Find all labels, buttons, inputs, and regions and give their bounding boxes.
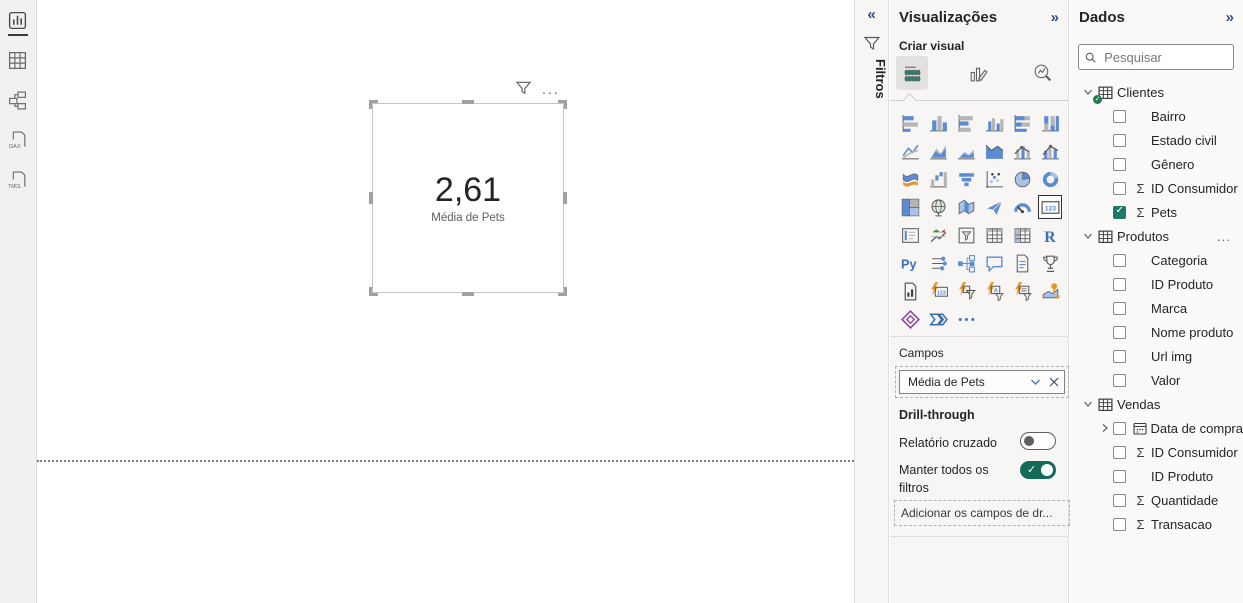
card-visual-content: 2,61 Média de Pets [373,104,563,292]
field-checkbox[interactable] [1113,182,1126,195]
field-gênero[interactable]: Gênero [1070,152,1243,176]
visual-type-slicer[interactable] [954,223,978,247]
field-checkbox[interactable] [1113,254,1126,267]
field-quantidade[interactable]: Σ Quantidade [1070,488,1243,512]
field-checkbox[interactable] [1113,494,1126,507]
field-checkbox[interactable] [1113,422,1126,435]
visualizations-tabs [896,56,1058,90]
keep-all-filters-toggle[interactable]: ✓ [1020,461,1056,479]
resize-handle-corner[interactable] [369,100,378,109]
view-rail: DAXTMDL [0,0,37,603]
visual-type-new-slicer[interactable] [954,279,978,303]
sigma-icon: Σ [1132,205,1149,220]
field-id-consumidor[interactable]: Σ ID Consumidor [1070,176,1243,200]
visual-type-multi-row-card[interactable] [898,223,922,247]
visual-type-more-visuals[interactable] [954,307,978,331]
field-label: Pets [1151,205,1177,220]
field-checkbox[interactable] [1113,134,1126,147]
visual-type-area-chart[interactable] [926,139,950,163]
field-id-produto[interactable]: ID Produto [1070,272,1243,296]
field-label: Estado civil [1151,133,1217,148]
field-pill-remove-icon[interactable] [1049,377,1059,387]
field-label: ID Consumidor [1151,445,1238,460]
calendar-icon [1132,422,1149,435]
field-label: Quantidade [1151,493,1218,508]
resize-handle-edge[interactable] [563,192,567,204]
field-data-de-compra[interactable]: Data de compra [1070,416,1243,440]
search-box[interactable] [1078,44,1234,70]
filter-funnel-icon[interactable] [515,80,532,97]
field-label: Transacao [1151,517,1212,532]
field-label: Nome produto [1151,325,1233,340]
visualizations-pane: Visualizações » Criar visual 123RPy123A … [890,0,1069,603]
visual-type-r-script-visual[interactable]: R [1038,223,1062,247]
svg-text:TMDL: TMDL [8,184,22,190]
field-checkbox[interactable] [1113,278,1126,291]
page-boundary-line [37,460,854,462]
visual-type-text-slicer[interactable]: A [982,279,1006,303]
visual-type-kpi[interactable] [926,223,950,247]
report-canvas[interactable]: ... 2,61 Média de Pets [37,0,854,603]
resize-handle-edge[interactable] [462,100,474,104]
visual-type-line-chart[interactable] [898,139,922,163]
field-categoria[interactable]: Categoria [1070,248,1243,272]
field-label: ID Consumidor [1151,181,1238,196]
field-id-consumidor[interactable]: Σ ID Consumidor [1070,440,1243,464]
tab-format-visual[interactable] [961,56,993,90]
field-url-img[interactable]: Url img [1070,344,1243,368]
field-pill-media-de-pets[interactable]: Média de Pets [899,370,1065,394]
drillthrough-label: Drill-through [899,408,975,422]
visual-type-power-apps[interactable] [898,307,922,331]
field-label: Url img [1151,349,1192,364]
svg-text:123: 123 [1044,205,1056,212]
cross-report-toggle[interactable] [1020,432,1056,450]
field-nome-produto[interactable]: Nome produto [1070,320,1243,344]
field-checkbox[interactable] [1113,158,1126,171]
visual-type-ribbon-chart[interactable] [898,167,922,191]
field-checkbox[interactable] [1113,446,1126,459]
data-pane-title: Dados [1079,9,1125,26]
visual-type-scatter-chart[interactable] [982,167,1006,191]
table-selected-badge: ✓ [1093,95,1102,104]
visual-type-stacked-area-chart[interactable] [954,139,978,163]
cross-report-label: Relatório cruzado [899,434,1007,452]
visual-type-clustered-bar-chart[interactable] [954,111,978,135]
visual-type-metrics[interactable] [1038,251,1062,275]
resize-handle-corner[interactable] [558,100,567,109]
visual-type-gauge[interactable] [1010,195,1034,219]
card-category-label: Média de Pets [431,212,505,224]
keep-all-filters-label: Manter todos os filtros [899,461,1007,497]
field-label: Valor [1151,373,1180,388]
field-transacao[interactable]: Σ Transacao [1070,512,1243,536]
table-produtos[interactable]: Produtos ... [1070,224,1243,248]
visual-type-new-card[interactable]: 123 [926,279,950,303]
field-checkbox[interactable] [1113,302,1126,315]
tabs-divider [890,100,1068,101]
view-rail-dax-query-view[interactable]: DAX [7,130,29,154]
table-more-options-button[interactable]: ... [1217,229,1231,244]
visual-type-card[interactable]: 123 [1038,195,1062,219]
gallery-divider [890,336,1068,337]
visual-type-arcgis-map[interactable] [1038,279,1062,303]
field-label: Marca [1151,301,1187,316]
svg-text:DAX: DAX [9,144,21,150]
field-pill-dropdown-icon[interactable] [1030,378,1041,386]
tab-build-visual[interactable] [896,56,928,90]
collapse-chevron-icon[interactable] [1080,399,1095,409]
visual-type-table[interactable] [982,223,1006,247]
expand-chevron-icon[interactable] [1098,423,1113,433]
visual-type-matrix[interactable] [1010,223,1034,247]
svg-text:R: R [1044,228,1056,245]
table-name: Produtos [1117,229,1169,244]
filters-pane-title[interactable]: Filtros [855,59,888,99]
visual-type-line-and-clustered-column-chart[interactable] [1038,139,1062,163]
svg-text:123: 123 [936,290,945,296]
visual-type-pie-chart[interactable] [1010,167,1034,191]
visualizations-title: Visualizações [899,9,997,26]
field-bairro[interactable]: Bairro [1070,104,1243,128]
field-checkbox[interactable] [1113,374,1126,387]
visual-type-stacked-column-chart[interactable] [926,111,950,135]
visual-type-funnel-chart[interactable] [954,167,978,191]
visual-hover-toolbar: ... [515,80,560,97]
visual-type-100-stacked-column-chart[interactable] [1038,111,1062,135]
search-input[interactable] [1102,49,1227,66]
fields-well[interactable]: Média de Pets [895,366,1069,398]
table-icon [1095,397,1115,412]
data-pane: Dados » ✓ Clientes Bairro Estado civil G… [1070,0,1243,603]
expand-filters-icon[interactable]: « [855,6,888,23]
sigma-icon: Σ [1132,517,1149,532]
visual-type-python-visual[interactable]: Py [898,251,922,275]
field-checkbox[interactable] [1113,110,1126,123]
search-icon [1085,51,1096,64]
visual-type-donut-chart[interactable] [1038,167,1062,191]
card-value: 2,61 [435,172,501,209]
create-visual-label: Criar visual [899,39,964,53]
visual-more-options-button[interactable]: ... [542,84,560,94]
field-checkbox[interactable] [1113,518,1126,531]
visual-gallery: 123RPy123A [896,109,1064,333]
svg-text:Py: Py [901,257,916,271]
filters-funnel-icon[interactable] [863,35,881,53]
view-rail-model-view[interactable] [7,90,29,114]
field-label: Data de compra [1151,421,1243,436]
visual-type-qa-visual[interactable] [982,251,1006,275]
collapse-data-pane-icon[interactable]: » [1226,9,1234,26]
field-pill-label: Média de Pets [908,375,1030,389]
sigma-icon: Σ [1132,181,1149,196]
visual-type-filled-map[interactable] [954,195,978,219]
visual-type-line-and-stacked-column-chart[interactable] [1010,139,1034,163]
collapse-chevron-icon[interactable] [1080,87,1095,97]
sigma-icon: Σ [1132,493,1149,508]
visual-type-smart-narrative[interactable] [1010,251,1034,275]
field-label: ID Produto [1151,277,1213,292]
visual-type-treemap[interactable] [898,195,922,219]
field-id-produto[interactable]: ID Produto [1070,464,1243,488]
powerbi-report-editor: DAXTMDL ... 2,61 Média de Pets « Filtros… [0,0,1243,603]
view-rail-report-view[interactable] [7,10,29,34]
card-visual[interactable]: 2,61 Média de Pets [372,103,564,293]
table-clientes[interactable]: ✓ Clientes [1070,80,1243,104]
table-icon [1095,229,1115,244]
resize-handle-edge[interactable] [462,292,474,296]
tab-analytics[interactable] [1026,56,1058,90]
resize-handle-corner[interactable] [369,287,378,296]
field-tree: ✓ Clientes Bairro Estado civil Gênero Σ … [1070,80,1243,536]
field-pets[interactable]: Σ Pets [1070,200,1243,224]
collapse-chevron-icon[interactable] [1080,231,1095,241]
field-label: Gênero [1151,157,1194,172]
visual-type-paginated-report[interactable] [898,279,922,303]
field-label: ID Produto [1151,469,1213,484]
visual-type-button-slicer[interactable] [1010,279,1034,303]
visual-type-power-automate[interactable] [926,307,950,331]
table-name: Vendas [1117,397,1160,412]
field-label: Categoria [1151,253,1207,268]
visual-type-100-stacked-area-chart[interactable] [982,139,1006,163]
visual-type-decomposition-tree[interactable] [954,251,978,275]
visual-type-stacked-bar-chart[interactable] [898,111,922,135]
fields-section-label: Campos [899,346,944,360]
visual-type-azure-map[interactable] [982,195,1006,219]
sigma-icon: Σ [1132,445,1149,460]
view-rail-tmdl-view[interactable]: TMDL [7,170,29,194]
field-label: Bairro [1151,109,1186,124]
visual-type-clustered-column-chart[interactable] [982,111,1006,135]
filters-pane-collapsed: « Filtros [854,0,889,603]
visual-type-key-influencers[interactable] [926,251,950,275]
field-estado-civil[interactable]: Estado civil [1070,128,1243,152]
view-rail-table-view[interactable] [7,50,29,74]
field-checkbox[interactable] [1113,350,1126,363]
resize-handle-edge[interactable] [369,192,373,204]
field-checkbox[interactable] [1113,470,1126,483]
table-name: Clientes [1117,85,1164,100]
field-valor[interactable]: Valor [1070,368,1243,392]
field-marca[interactable]: Marca [1070,296,1243,320]
table-icon: ✓ [1095,85,1115,100]
field-checkbox[interactable] [1113,326,1126,339]
table-vendas[interactable]: Vendas [1070,392,1243,416]
visual-type-map[interactable] [926,195,950,219]
collapse-visualizations-icon[interactable]: » [1051,9,1059,26]
field-checkbox[interactable] [1113,206,1126,219]
visual-type-waterfall-chart[interactable] [926,167,950,191]
resize-handle-corner[interactable] [558,287,567,296]
add-drillthrough-fields-dropzone[interactable]: Adicionar os campos de dr... [894,500,1070,526]
visual-type-100-stacked-bar-chart[interactable] [1010,111,1034,135]
drill-divider [890,536,1068,537]
